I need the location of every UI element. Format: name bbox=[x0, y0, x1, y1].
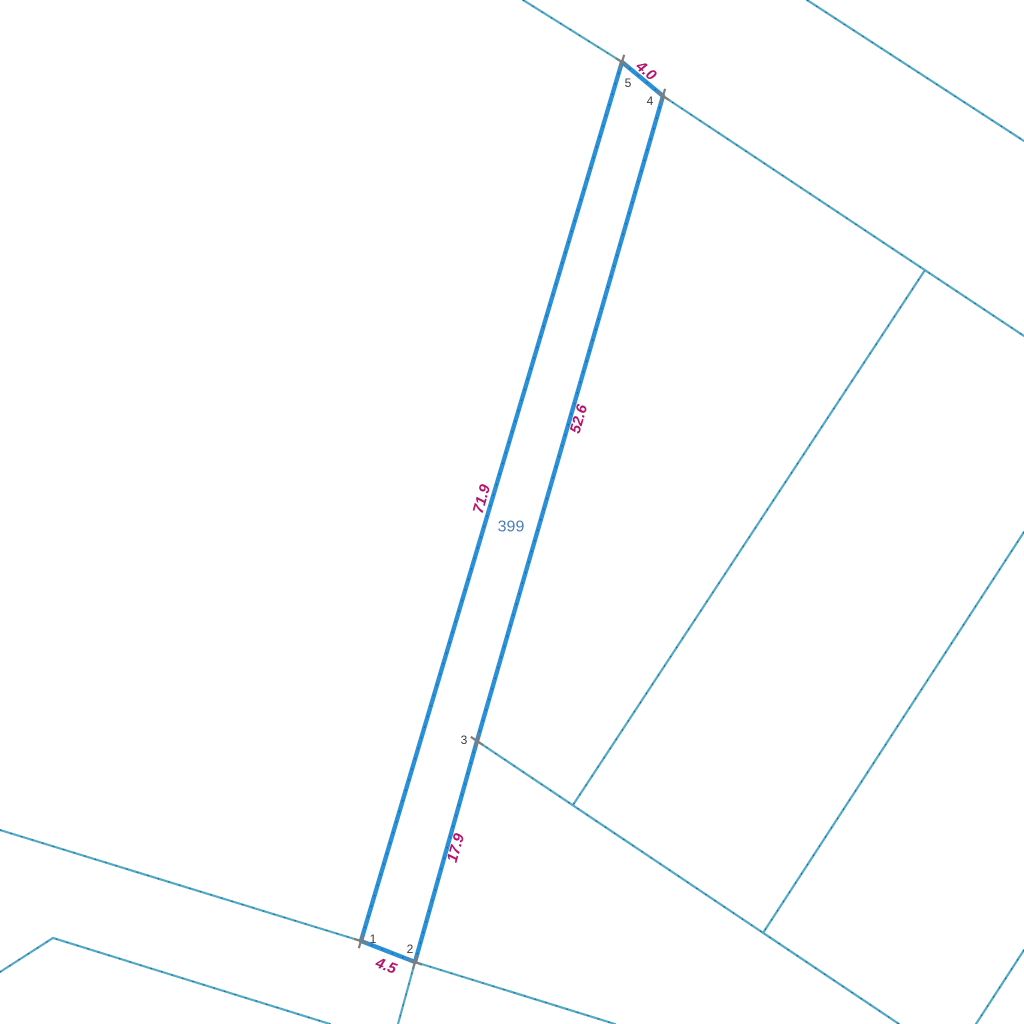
vertex-number-1: 1 bbox=[370, 932, 377, 946]
boundary-line-road-west-upper bbox=[0, 830, 615, 1024]
edge-length-label-1-2: 4.5 bbox=[372, 954, 399, 978]
edge-length-label-3-4: 52.6 bbox=[567, 402, 592, 435]
boundary-line-road-west-lower bbox=[0, 938, 330, 1024]
map-svg: 123454.517.952.64.071.9399 bbox=[0, 0, 1024, 1024]
edge-length-label-4-5: 4.0 bbox=[632, 57, 660, 84]
vertex-number-4: 4 bbox=[647, 94, 654, 108]
vertex-number-3: 3 bbox=[461, 733, 468, 747]
parcel-boundary-dashes bbox=[361, 62, 663, 962]
boundary-line-dashes-road-west-lower bbox=[0, 938, 330, 1024]
vertex-number-5: 5 bbox=[625, 76, 632, 90]
edge-length-label-2-3: 17.9 bbox=[444, 831, 469, 864]
parcel-number-label: 399 bbox=[498, 519, 525, 536]
cadastral-map-canvas[interactable]: 123454.517.952.64.071.9399 bbox=[0, 0, 1024, 1024]
boundary-line-road-top-right bbox=[807, 0, 1024, 141]
boundary-line-lane-below-v2 bbox=[398, 962, 415, 1024]
parcel-399-boundary[interactable] bbox=[361, 62, 663, 962]
vertex-number-2: 2 bbox=[407, 942, 414, 956]
boundary-line-road-north-east bbox=[663, 96, 1024, 336]
boundary-line-cross-line-lower bbox=[763, 532, 1024, 933]
